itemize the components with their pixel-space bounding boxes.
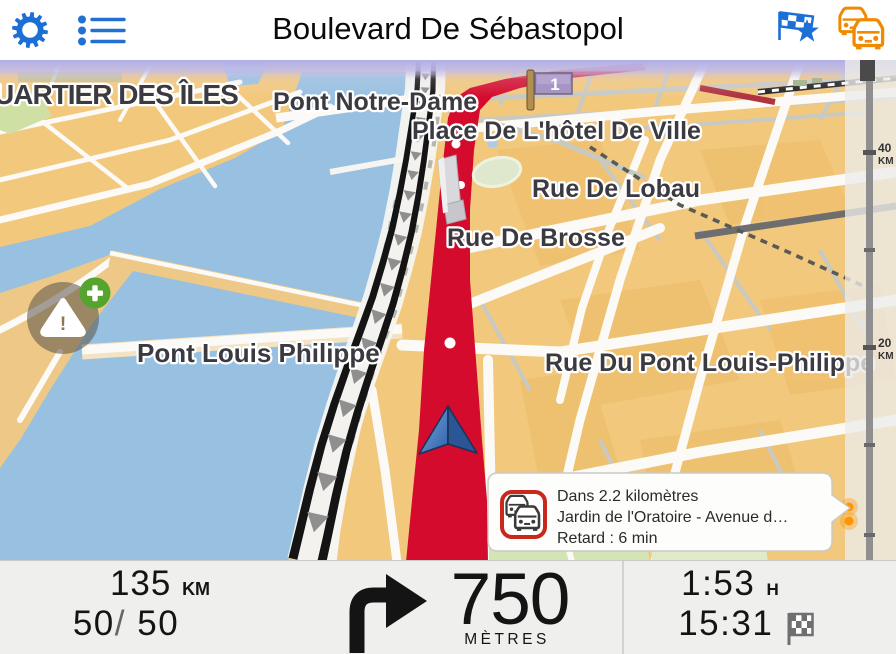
svg-text:Dans 2.2 kilomètres: Dans 2.2 kilomètres [557,488,698,505]
svg-text:Pont Louis Philippe: Pont Louis Philippe [137,338,380,368]
svg-text:KM: KM [878,156,894,167]
svg-text:40: 40 [878,141,892,155]
svg-text:Rue De Brosse: Rue De Brosse [447,224,625,252]
svg-text:Rue Du Pont Louis-Philippe: Rue Du Pont Louis-Philippe [545,349,874,377]
svg-text:KM: KM [878,351,894,362]
svg-text:UARTIER DES ÎLES: UARTIER DES ÎLES [0,79,238,110]
svg-text:Place De L'hôtel De Ville: Place De L'hôtel De Ville [412,117,701,145]
svg-text:Pont Notre-Dame: Pont Notre-Dame [273,88,477,116]
svg-text:20: 20 [878,336,892,350]
svg-text:Retard : 6 min: Retard : 6 min [557,530,657,547]
svg-text:1: 1 [550,75,559,94]
svg-text:Jardin de l'Oratoire - Avenue: Jardin de l'Oratoire - Avenue d… [557,509,788,526]
svg-text:Rue De Lobau: Rue De Lobau [532,175,700,203]
svg-text:!: ! [60,314,66,335]
